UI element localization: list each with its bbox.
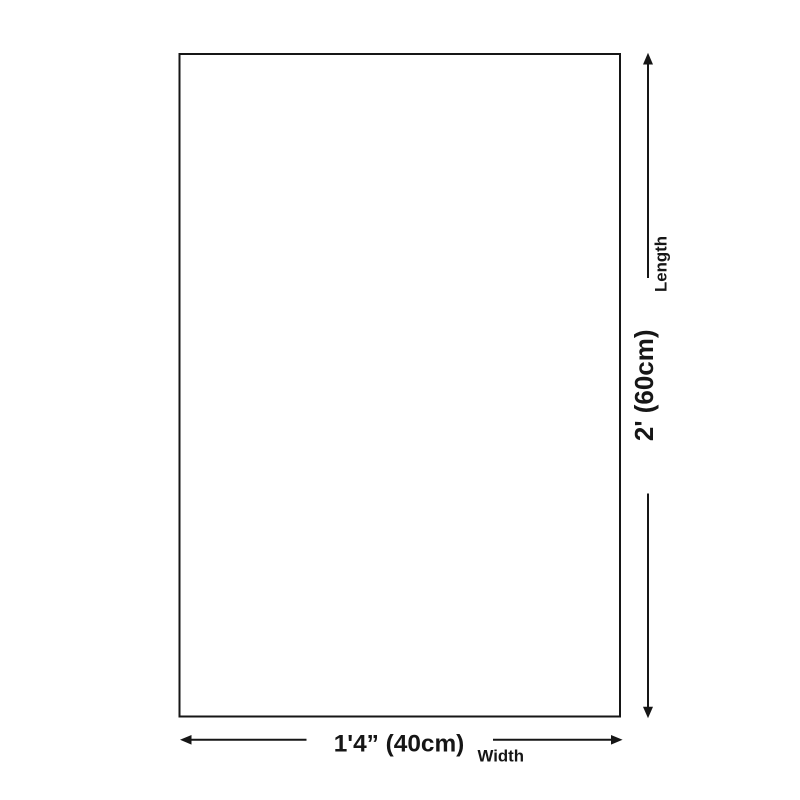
svg-text:2' (60cm): 2' (60cm)	[629, 329, 659, 441]
svg-text:Length: Length	[652, 236, 671, 292]
svg-text:1'4” (40cm): 1'4” (40cm)	[334, 730, 465, 757]
svg-text:Width: Width	[478, 747, 524, 766]
